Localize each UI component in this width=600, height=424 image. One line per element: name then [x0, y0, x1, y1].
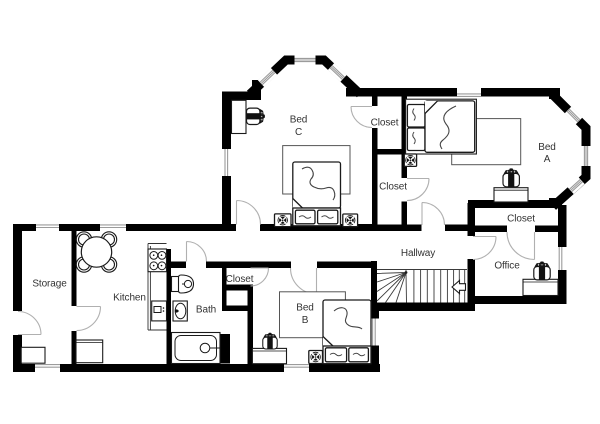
svg-text:Hallway: Hallway [401, 248, 435, 259]
svg-text:Closet: Closet [507, 214, 535, 225]
svg-text:Bed: Bed [296, 303, 314, 314]
svg-text:C: C [295, 127, 302, 138]
svg-text:Bed: Bed [290, 115, 308, 126]
svg-text:B: B [302, 315, 309, 326]
svg-text:Closet: Closet [226, 274, 254, 285]
svg-text:Bath: Bath [196, 305, 216, 316]
svg-text:Closet: Closet [371, 118, 399, 129]
svg-text:Office: Office [494, 261, 520, 272]
svg-text:Bed: Bed [538, 142, 556, 153]
svg-text:Kitchen: Kitchen [113, 293, 146, 304]
svg-text:Closet: Closet [379, 182, 407, 193]
svg-text:Storage: Storage [32, 279, 67, 290]
svg-text:A: A [544, 154, 551, 165]
